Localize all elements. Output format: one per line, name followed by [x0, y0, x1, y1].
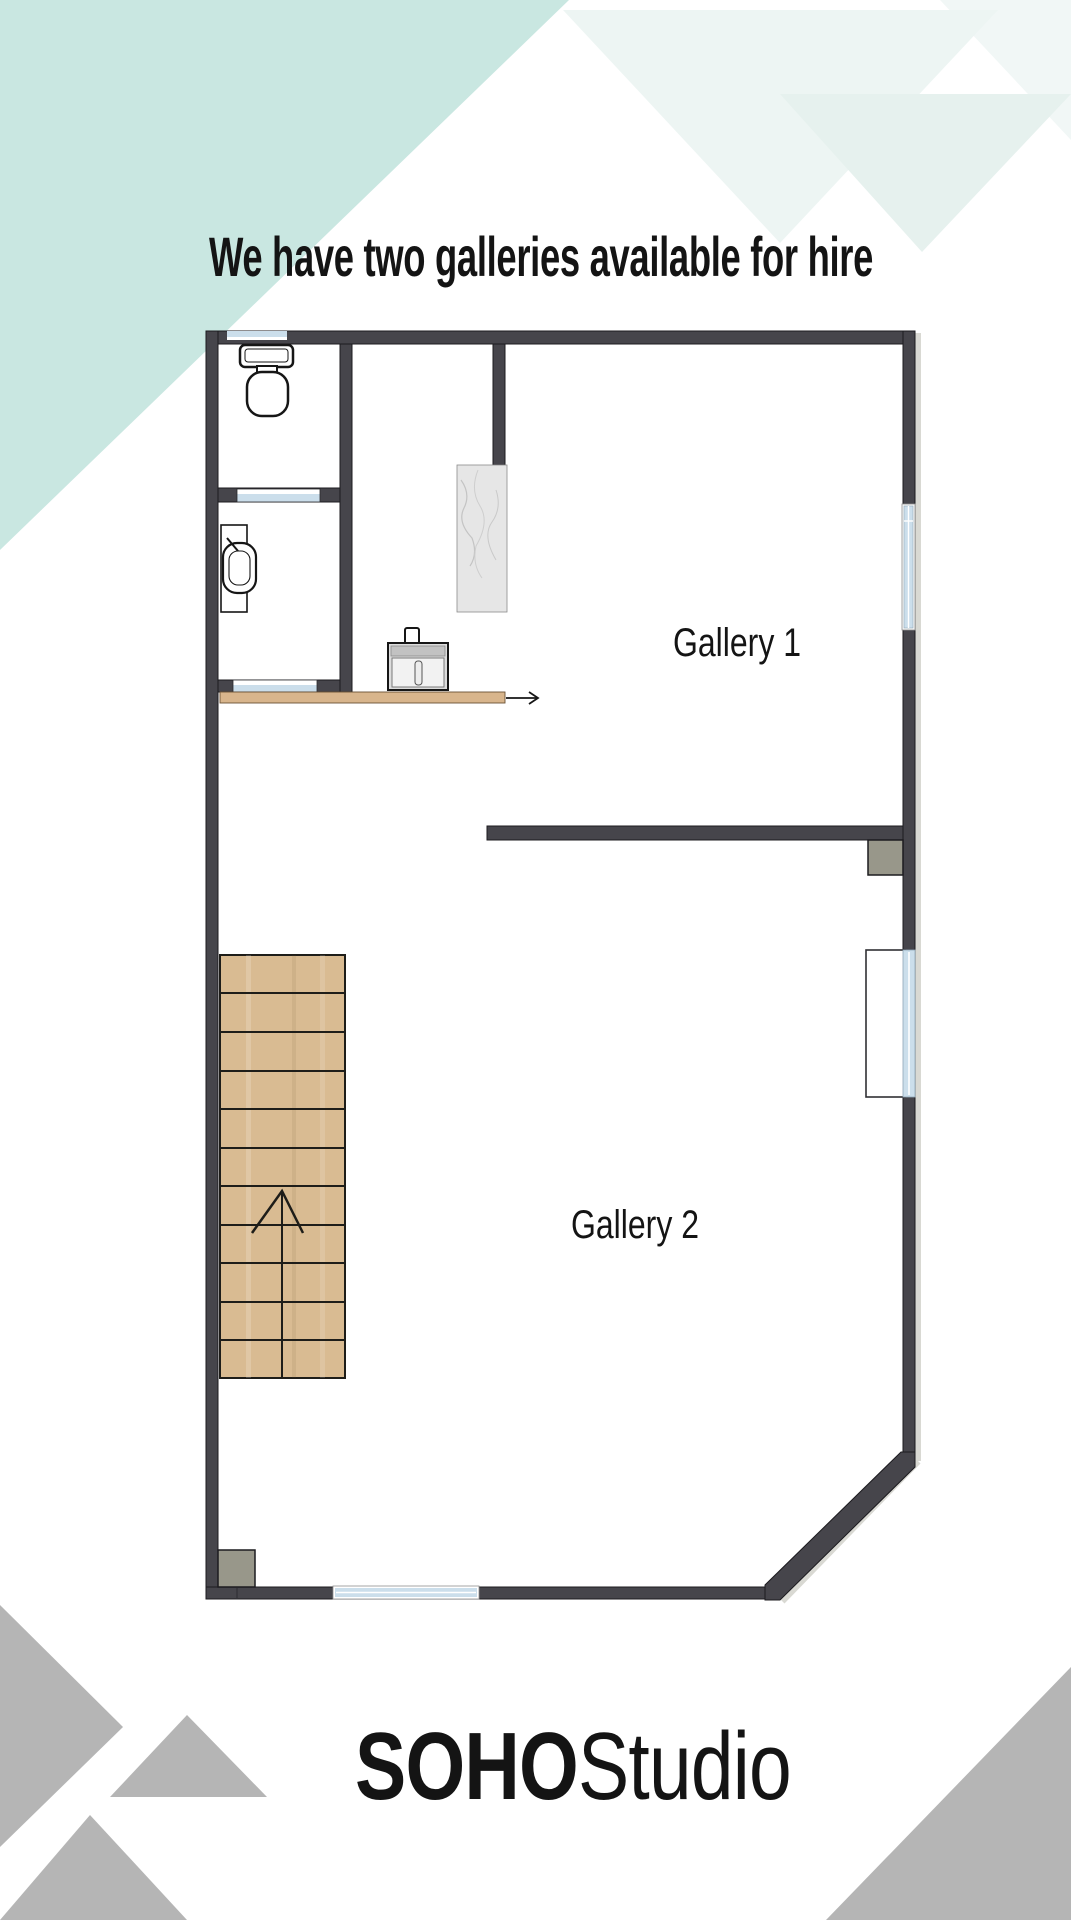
gallery1-label: Gallery 1 [657, 623, 817, 663]
toilet-bowl [247, 372, 288, 416]
logo-text: SOHOStudio [355, 1719, 791, 1815]
door-gallery2-leaf [866, 950, 905, 1097]
window-top-left-frame [227, 337, 287, 340]
window-top-left [227, 331, 287, 337]
urinal-fixture [221, 525, 256, 612]
door-wc1 [237, 494, 320, 502]
sink-drain-handle [415, 661, 422, 685]
counter [220, 692, 505, 703]
sink-back-ledge [391, 646, 445, 656]
gallery2-label-text: Gallery 2 [571, 1205, 699, 1245]
sink-tap [405, 628, 419, 644]
stairs-grain-1 [246, 955, 251, 1378]
wall-gallery1-stub [493, 344, 505, 465]
wall-left [206, 331, 218, 1599]
logo: SOHOStudio [301, 1719, 846, 1815]
wall-wc-right [340, 344, 352, 692]
door-wc2 [233, 685, 317, 692]
toilet-cistern-lid [245, 349, 288, 362]
stairs-grain-3 [320, 955, 325, 1378]
page-title-text: We have two galleries available for hire [209, 229, 873, 285]
page-title: We have two galleries available for hire [30, 229, 1052, 285]
gallery1-label-text: Gallery 1 [673, 623, 801, 663]
page: We have two galleries available for hire… [0, 0, 1071, 1920]
wall-gallery-divider [487, 826, 903, 840]
sink-fixture [388, 628, 448, 690]
marble-panel [457, 465, 507, 612]
logo-regular: Studio [578, 1713, 791, 1820]
stairs-grain-2 [292, 955, 296, 1378]
wall-diagonal [765, 1452, 915, 1600]
pillar-gallery-divider [868, 840, 903, 875]
wall-bottom [206, 1587, 778, 1599]
staircase [220, 955, 345, 1378]
gallery2-label: Gallery 2 [555, 1205, 715, 1245]
logo-bold: SOHO [355, 1713, 578, 1820]
toilet-fixture [240, 345, 293, 416]
door-wc2-frame [233, 680, 317, 685]
pillar-bottom-left [218, 1550, 255, 1587]
wall-top [206, 331, 915, 344]
wall-right [903, 331, 915, 1460]
right-arrow-icon [506, 692, 538, 704]
floorplan [0, 0, 1071, 1920]
right-wall-shadow [915, 333, 921, 1461]
door-wc1-frame [237, 489, 320, 494]
